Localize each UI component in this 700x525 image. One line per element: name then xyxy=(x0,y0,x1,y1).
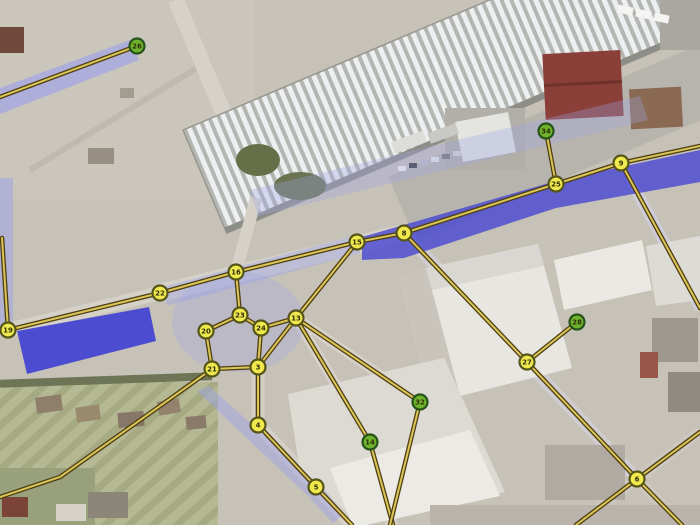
node-25[interactable]: 25 xyxy=(549,177,564,192)
node-24[interactable]: 24 xyxy=(254,321,269,336)
building-roof xyxy=(652,318,698,362)
node-label: 9 xyxy=(619,160,624,168)
node-5[interactable]: 5 xyxy=(309,480,324,495)
node-label: 15 xyxy=(352,239,362,247)
building-roof xyxy=(56,504,86,521)
node-label: 13 xyxy=(291,315,301,323)
node-26[interactable]: 26 xyxy=(130,39,145,54)
node-label: 32 xyxy=(415,399,425,407)
road xyxy=(430,505,700,525)
node-13[interactable]: 13 xyxy=(289,311,304,326)
node-label: 14 xyxy=(365,439,375,447)
node-label: 25 xyxy=(551,181,561,189)
building-roof xyxy=(0,27,24,53)
node-23[interactable]: 23 xyxy=(233,308,248,323)
node-label: 6 xyxy=(635,476,640,484)
node-label: 23 xyxy=(235,312,245,320)
map-viewport: 26192216232024213451315825349272863214 xyxy=(0,0,700,525)
node-label: 27 xyxy=(522,359,532,367)
node-3[interactable]: 3 xyxy=(251,360,266,375)
node-8[interactable]: 8 xyxy=(397,226,412,241)
node-label: 16 xyxy=(231,269,241,277)
node-22[interactable]: 22 xyxy=(153,286,168,301)
node-19[interactable]: 19 xyxy=(1,323,16,338)
building-roof xyxy=(88,492,128,518)
node-label: 3 xyxy=(256,364,261,372)
node-14[interactable]: 14 xyxy=(363,435,378,450)
node-label: 19 xyxy=(3,327,13,335)
node-label: 28 xyxy=(572,319,582,327)
node-label: 4 xyxy=(256,422,261,430)
node-label: 5 xyxy=(314,484,319,492)
node-4[interactable]: 4 xyxy=(251,418,266,433)
node-label: 34 xyxy=(541,128,551,136)
node-28[interactable]: 28 xyxy=(570,315,585,330)
node-15[interactable]: 15 xyxy=(350,235,365,250)
node-34[interactable]: 34 xyxy=(539,124,554,139)
map-canvas[interactable]: 26192216232024213451315825349272863214 xyxy=(0,0,700,525)
node-label: 21 xyxy=(207,366,217,374)
shack-roof xyxy=(120,88,134,98)
house-roof xyxy=(185,415,206,430)
node-label: 24 xyxy=(256,325,266,333)
node-label: 20 xyxy=(201,328,211,336)
node-6[interactable]: 6 xyxy=(630,472,645,487)
building-roof xyxy=(668,372,700,412)
node-20[interactable]: 20 xyxy=(199,324,214,339)
node-label: 26 xyxy=(132,43,142,51)
trees xyxy=(236,144,280,176)
node-9[interactable]: 9 xyxy=(614,156,629,171)
node-21[interactable]: 21 xyxy=(205,362,220,377)
node-32[interactable]: 32 xyxy=(413,395,428,410)
node-27[interactable]: 27 xyxy=(520,355,535,370)
building-roof xyxy=(2,497,28,517)
node-label: 22 xyxy=(155,290,165,298)
building-roof xyxy=(640,352,658,378)
node-16[interactable]: 16 xyxy=(229,265,244,280)
building-roof xyxy=(660,0,700,50)
node-label: 8 xyxy=(402,230,407,238)
shack-roof xyxy=(88,148,114,164)
